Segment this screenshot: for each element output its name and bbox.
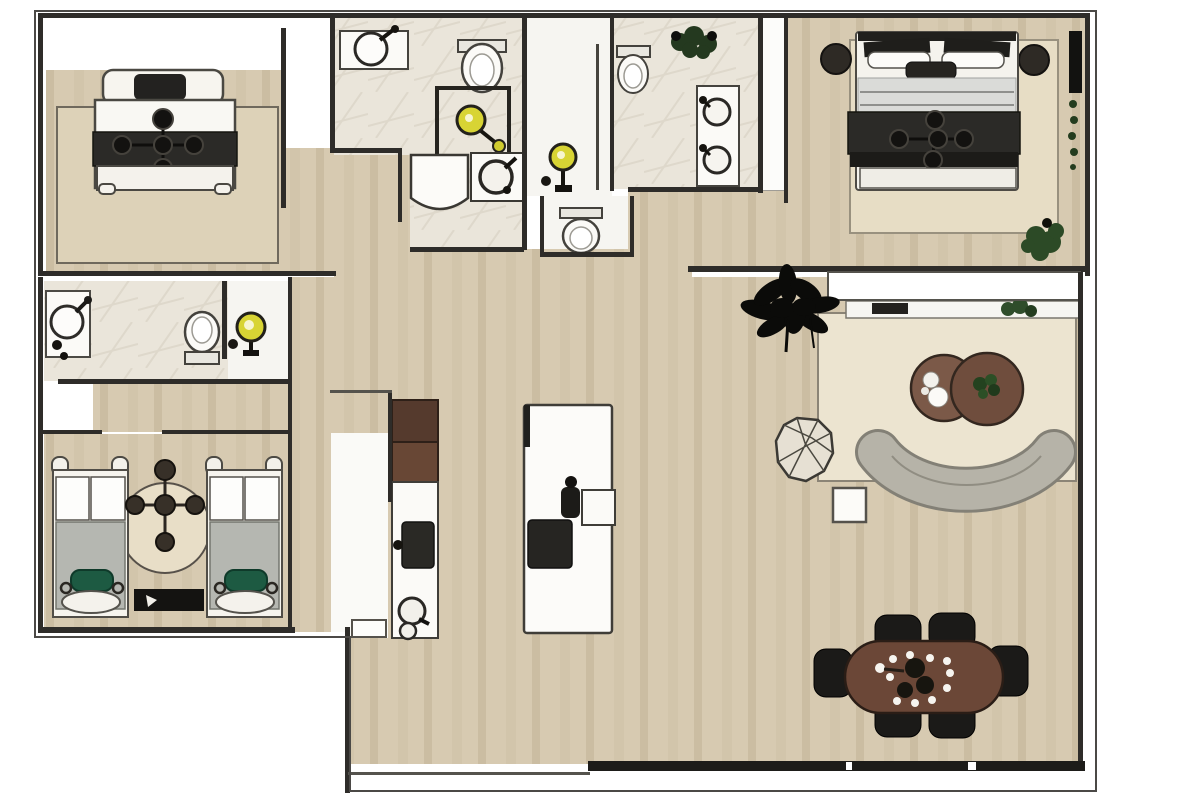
kidbed1-base [62, 591, 120, 613]
wall-bathA-bottom [410, 247, 524, 252]
dining-dot-4 [943, 657, 951, 665]
kitchen-knob [393, 540, 403, 550]
console-plant-3 [1025, 305, 1037, 317]
wall-nook-top [332, 148, 402, 153]
master-curtain-dot-3 [1068, 132, 1076, 140]
master-cushion-3 [929, 130, 947, 148]
island-appliance [561, 487, 580, 518]
showerB-base [555, 185, 572, 192]
wall-master-left [784, 13, 788, 203]
dining-pan [875, 663, 885, 673]
showerB-head-center [557, 151, 565, 159]
dining-dot-6 [946, 669, 954, 677]
wall-bedroom1-bottom [38, 271, 336, 276]
wall-band-living [828, 272, 1080, 300]
glass-partition [596, 44, 599, 190]
kitchen-cabinet-lower [392, 442, 438, 482]
kidbed1-cushion [71, 570, 113, 591]
master-curtain-dot-1 [1069, 100, 1077, 108]
master-corner-plant-5 [1021, 239, 1035, 253]
master-bed-foot [860, 168, 1016, 188]
kidbed1-pillow-left [56, 477, 89, 520]
dining-dot-8 [911, 699, 919, 707]
palm-leaf-10 [792, 298, 816, 316]
chandelier-lamp-bottom [156, 533, 174, 551]
bed1-foot [97, 166, 233, 190]
entry-mat [352, 620, 386, 637]
wall-master-right [1085, 13, 1090, 276]
island-side-box [582, 490, 615, 525]
master-curtain-dot-2 [1070, 116, 1078, 124]
master-headboard [858, 32, 1016, 41]
master-cushion-5 [924, 151, 942, 169]
bed1-foot-left-leg [99, 184, 115, 194]
showerA-tray [411, 155, 468, 209]
wall-kids-bottom [38, 627, 295, 633]
bed1-cushion-3 [154, 136, 172, 154]
kids-bench [134, 589, 204, 611]
midbath-soap-1 [52, 340, 62, 350]
chandelier-lamp-top [155, 460, 175, 480]
washer-dot [503, 186, 511, 194]
master-curtain-dot-4 [1070, 148, 1078, 156]
dining-dot-5 [886, 673, 894, 681]
wall-bathA-left [330, 13, 335, 153]
wall-wc-bottom [540, 252, 634, 257]
palm-leaf-9 [770, 298, 794, 318]
chandelier-lamp-right [186, 496, 204, 514]
wall-bedroom1-right [281, 28, 286, 208]
midbath-faucet-dot [84, 296, 92, 304]
wall-midbath-bottom [58, 379, 290, 384]
dining-centerpiece-1 [905, 658, 925, 678]
midbath-toilet-inner [192, 317, 212, 343]
master-cushion-4 [955, 130, 973, 148]
midbath-ysink-center [244, 320, 254, 330]
dining-centerpiece-3 [897, 682, 913, 698]
kidbed1-pillow-right [91, 477, 125, 520]
midbath-blob [228, 339, 238, 349]
bathC-plant-dark-1 [671, 31, 681, 41]
showerA-wall-left [435, 86, 439, 154]
wall-bottom-gap-2 [968, 762, 976, 770]
dining-centerpiece-2 [916, 676, 934, 694]
bathC-plant-4 [682, 42, 698, 58]
master-curtain-strip [1069, 31, 1082, 93]
wall-left-lower [38, 277, 43, 632]
chandelier-lamp-center [155, 495, 175, 515]
showerA-head-center [465, 114, 473, 122]
dining-dot-1 [889, 655, 897, 663]
master-cushion-2 [890, 130, 908, 148]
bathA-toilet-inner [470, 54, 494, 86]
wall-bathC-bottom [628, 187, 762, 192]
wall-wc-right [630, 196, 634, 254]
wall-bottom-band [588, 761, 1085, 771]
wall-midbath-divider [222, 281, 227, 359]
master-nightstand-left [821, 44, 851, 74]
dining-dot-2 [906, 651, 914, 659]
coffee-plant-4 [978, 389, 988, 399]
showerA-handle [493, 140, 505, 152]
kidbed2-cushion [225, 570, 267, 591]
kitchen-cabinet-upper [392, 400, 438, 442]
wall-bottom-thin [348, 772, 590, 775]
master-cushion-1 [926, 111, 944, 129]
console-tv [872, 303, 908, 314]
bed1-foot-right-leg [215, 184, 231, 194]
wc-toilet-inner [570, 227, 592, 249]
bed1-cushion-2 [113, 136, 131, 154]
midbath-toilet-tank [185, 352, 219, 364]
bathA-faucet-dot [391, 25, 399, 33]
chandelier-lamp-left [126, 496, 144, 514]
midbath-ysink-base [243, 350, 259, 356]
bed1-headboard-pillow [134, 74, 186, 100]
floor-plan [0, 0, 1200, 811]
wall-bottom-gap-1 [846, 762, 852, 770]
wall-kids-top-a [38, 430, 102, 434]
coffee-deco-2 [928, 387, 948, 407]
midbath-soap-2 [60, 352, 68, 360]
floor-plan-page [0, 0, 1200, 811]
master-nightstand-right [1019, 45, 1049, 75]
master-curtain-dot-5 [1070, 164, 1076, 170]
master-corner-plant-dark [1042, 218, 1052, 228]
wc-toilet-tank [560, 208, 602, 218]
wall-living-right [1078, 272, 1083, 764]
island-cooktop [528, 520, 572, 568]
showerA-wall-right [507, 86, 511, 154]
dining-dot-3 [926, 654, 934, 662]
palm-stem-1 [786, 320, 788, 352]
side-table [833, 488, 866, 522]
wicker-chair [776, 418, 833, 481]
wall-kitchen-top [330, 390, 392, 393]
coffee-plant-1 [973, 377, 987, 391]
wall-wc-left [540, 196, 544, 254]
dining-pan-handle [884, 669, 904, 671]
bottomleft-outside [286, 632, 348, 798]
kidbed2-pillow-left [210, 477, 243, 520]
showerB-blob [541, 176, 551, 186]
wall-bathC-right [758, 13, 763, 193]
dining-dot-10 [943, 684, 951, 692]
wall-tray-left [398, 152, 402, 222]
wall-kids-top-b [162, 430, 290, 434]
bathC-plant-5 [696, 45, 710, 59]
kitchen-cooktop [402, 522, 434, 568]
wall-kitchen [388, 390, 392, 502]
island-appliance-dot [565, 476, 577, 488]
kitchen-sink-small [400, 623, 416, 639]
wall-top [38, 13, 1090, 18]
bathC-plant-dark-2 [707, 31, 717, 41]
dining-dot-9 [928, 696, 936, 704]
bed1-cushion-4 [185, 136, 203, 154]
showerA-wall-top [435, 86, 511, 90]
kidbed2-base [216, 591, 274, 613]
island-dark-edge [524, 405, 530, 447]
hallway-floor-3 [93, 384, 289, 432]
master-accent-pillow [906, 62, 956, 79]
wall-main-left [288, 277, 292, 630]
kidbed2-pillow-right [245, 477, 279, 520]
kitchen-floor-white [331, 433, 388, 638]
wall-bathBC [610, 13, 614, 191]
dining-dot-7 [893, 697, 901, 705]
bathB-toilet-inner [624, 64, 642, 88]
wall-left-upper [38, 13, 43, 273]
bed1-cushion-1 [153, 109, 173, 129]
coffee-deco-1 [923, 372, 939, 388]
hallway-floor-2 [628, 191, 788, 269]
coffee-table-2 [951, 353, 1023, 425]
wall-bathAB [522, 13, 527, 250]
coffee-deco-3 [921, 387, 929, 395]
closet-strip [761, 15, 786, 191]
coffee-plant-3 [988, 384, 1000, 396]
